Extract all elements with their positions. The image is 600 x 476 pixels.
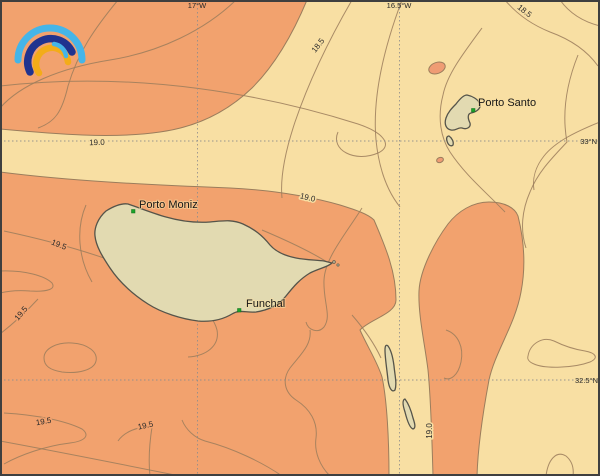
porto-moniz-marker xyxy=(132,210,136,214)
funchal-label: Funchal xyxy=(246,298,285,310)
sea-warm-region-central xyxy=(0,172,396,476)
meridian-16-5w-label: 16.5°W xyxy=(387,1,413,10)
porto-santo-label: Porto Santo xyxy=(478,97,536,109)
porto-santo-marker xyxy=(472,109,476,113)
map-canvas: Porto Moniz Funchal Porto Santo 18.5 18.… xyxy=(0,0,600,476)
parallel-33n-label: 33°N xyxy=(580,137,597,146)
sst-contour-map: Porto Moniz Funchal Porto Santo 18.5 18.… xyxy=(0,0,600,476)
svg-text:19.0: 19.0 xyxy=(89,138,105,148)
svg-text:19.0: 19.0 xyxy=(425,423,434,439)
meridian-17w-label: 17°W xyxy=(188,1,207,10)
funchal-marker xyxy=(238,309,242,313)
madeira-east-islet xyxy=(333,261,336,264)
porto-moniz-label: Porto Moniz xyxy=(139,199,198,211)
madeira-east-islet-2 xyxy=(337,264,339,266)
parallel-32-5n-label: 32.5°N xyxy=(575,376,598,385)
